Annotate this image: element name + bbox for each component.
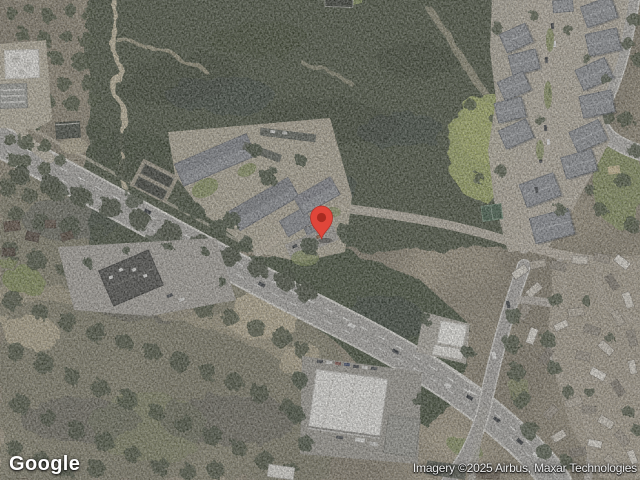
pin-inner-dot <box>317 213 326 222</box>
imagery-attribution: Imagery ©2025 Airbus, Maxar Technologies <box>413 461 637 475</box>
google-logo[interactable]: Google <box>9 453 80 476</box>
map-canvas[interactable]: Google Imagery ©2025 Airbus, Maxar Techn… <box>0 0 640 480</box>
satellite-imagery <box>0 0 640 480</box>
